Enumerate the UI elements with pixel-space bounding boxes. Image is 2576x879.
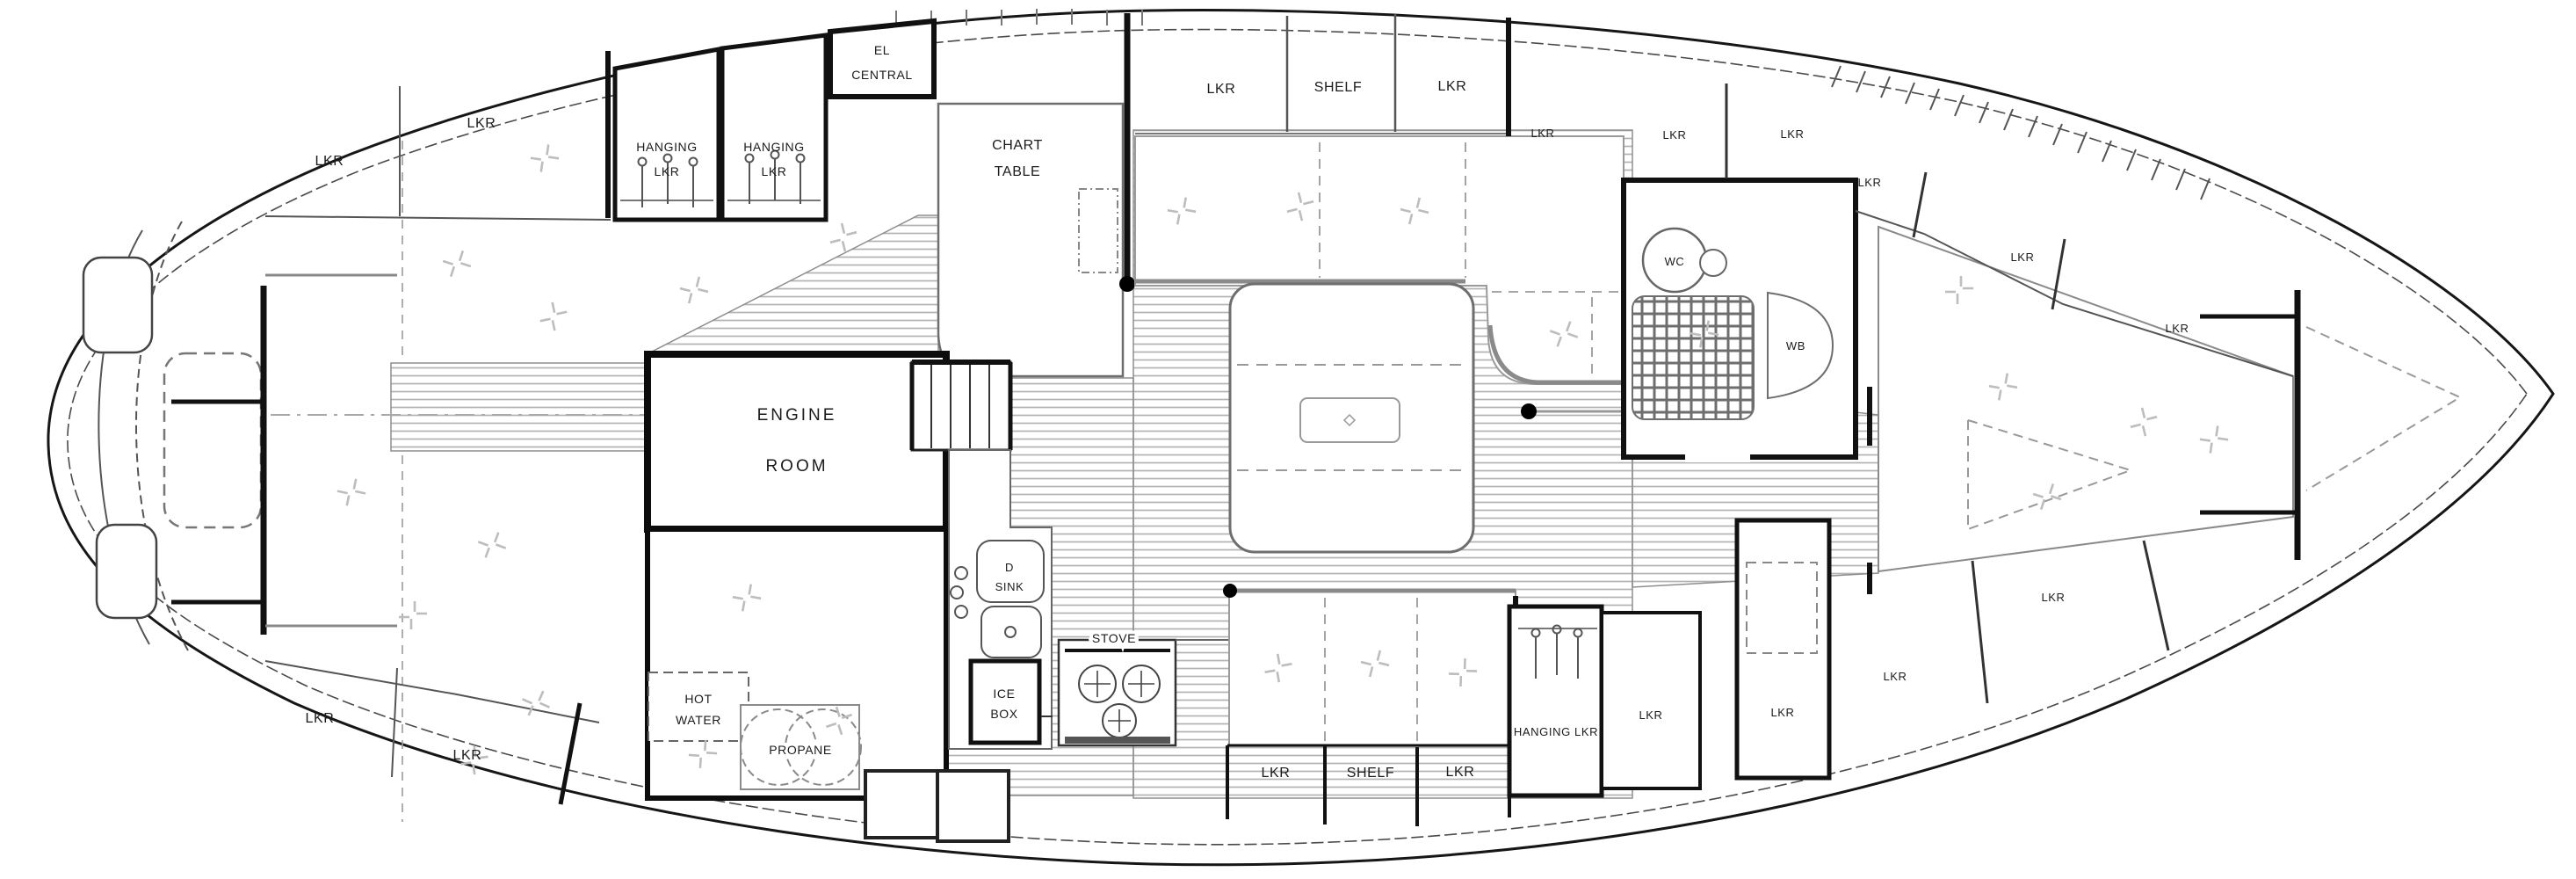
companionway-steps (912, 362, 1010, 450)
label-salon-top-lkr-1: LKR (1207, 82, 1236, 97)
head-door-gap (1685, 447, 1750, 462)
label-salon-top-shelf: SHELF (1314, 80, 1363, 95)
label-engine-b: ROOM (765, 457, 828, 476)
transom-seat-top (83, 258, 152, 352)
toilet-pump (1700, 250, 1726, 276)
label-stbd-lkr-2: LKR (1446, 765, 1475, 780)
label-stbd-lkr-1: LKR (1262, 766, 1291, 781)
label-vberth-top-lkr-1: LKR (1857, 176, 1881, 189)
label-hot-water-a: HOT (684, 692, 712, 706)
label-hot-water-b: WATER (676, 713, 721, 727)
label-hanging-2a: HANGING (743, 140, 805, 154)
transom-seat-bottom (97, 525, 156, 618)
el-central-panel (830, 21, 934, 97)
label-chart-b: TABLE (995, 164, 1041, 179)
salon-post (1521, 403, 1537, 419)
sailboat-floor-plan: LKR LKR HANGING LKR HANGING LKR EL CENTR… (0, 0, 2576, 879)
label-head-lkr-2: LKR (1780, 127, 1804, 141)
swim-ladder-hatch (164, 353, 261, 527)
label-salon-top-lkr-2: LKR (1438, 79, 1467, 94)
label-engine-a: ENGINE (757, 406, 837, 425)
sink-bowl-2 (981, 607, 1041, 657)
v-berth (1878, 227, 2293, 571)
bow-deck-ticks (1832, 66, 2210, 200)
label-sink-a: D (1005, 561, 1014, 574)
aft-top-locker-face (265, 216, 611, 220)
galley-locker-1 (865, 771, 937, 838)
label-chart-a: CHART (992, 138, 1043, 153)
label-vberth-bottom-lkr-2: LKR (2041, 591, 2065, 604)
label-stove: STOVE (1092, 631, 1136, 645)
aft-bottom-locker-endwall (561, 703, 580, 804)
label-wc: WC (1665, 255, 1685, 268)
label-aft-top-lkr-2: LKR (467, 116, 496, 131)
label-hull-top-lkr: LKR (1530, 127, 1554, 140)
shower-grate (1632, 296, 1754, 419)
hot-water-heater (648, 672, 749, 741)
galley-locker-2 (937, 771, 1009, 841)
label-vberth-top-lkr-2: LKR (2010, 251, 2034, 264)
label-aft-bottom-lkr-1: LKR (306, 711, 335, 726)
fwd-hanging-locker (1509, 607, 1602, 795)
stern-transom (83, 258, 264, 635)
fwd-locker-1 (1602, 613, 1700, 788)
sole-aft-passage (391, 363, 648, 451)
label-stbd-shelf: SHELF (1347, 766, 1395, 781)
label-propane: PROPANE (769, 743, 832, 757)
berth-boards (265, 275, 397, 626)
vberth-bottom-locker-dividers (1972, 541, 2168, 703)
transom-walkthrough-walls (171, 402, 262, 602)
settee-post (1223, 584, 1237, 598)
ice-box (971, 661, 1039, 743)
label-fwd-lkr-2: LKR (1770, 706, 1794, 719)
bulkhead-post (1119, 276, 1135, 292)
salon-table (1230, 284, 1473, 552)
label-aft-bottom-lkr-2: LKR (453, 748, 482, 763)
engine-room (648, 354, 946, 529)
bow-inner-dashline (2306, 327, 2460, 490)
fore-cabin (1856, 172, 2460, 703)
floor-plan-page: LKR LKR HANGING LKR HANGING LKR EL CENTR… (0, 0, 2576, 879)
sole-companionway-wedge (652, 215, 938, 352)
label-icebox-b: BOX (990, 707, 1017, 721)
label-el-central-b: CENTRAL (851, 68, 913, 82)
label-hanging-1b: LKR (654, 164, 679, 178)
label-vberth-bottom-lkr-1: LKR (1883, 670, 1907, 683)
stove (1059, 640, 1176, 745)
label-fwd-hanging-lkr: HANGING LKR (1514, 725, 1598, 738)
head-compartment (1624, 84, 1856, 462)
label-hanging-1a: HANGING (636, 140, 698, 154)
label-hanging-2b: LKR (761, 164, 786, 178)
label-wb: WB (1786, 339, 1805, 352)
label-icebox-a: ICE (993, 686, 1015, 701)
label-sink-b: SINK (995, 580, 1024, 593)
label-head-lkr-1: LKR (1662, 128, 1686, 142)
fwd-locker-2 (1737, 520, 1829, 778)
label-vberth-top-lkr-3: LKR (2165, 322, 2189, 335)
label-el-central-a: EL (874, 43, 890, 57)
label-aft-top-lkr-1: LKR (315, 154, 344, 169)
label-fwd-lkr-1: LKR (1639, 708, 1662, 722)
